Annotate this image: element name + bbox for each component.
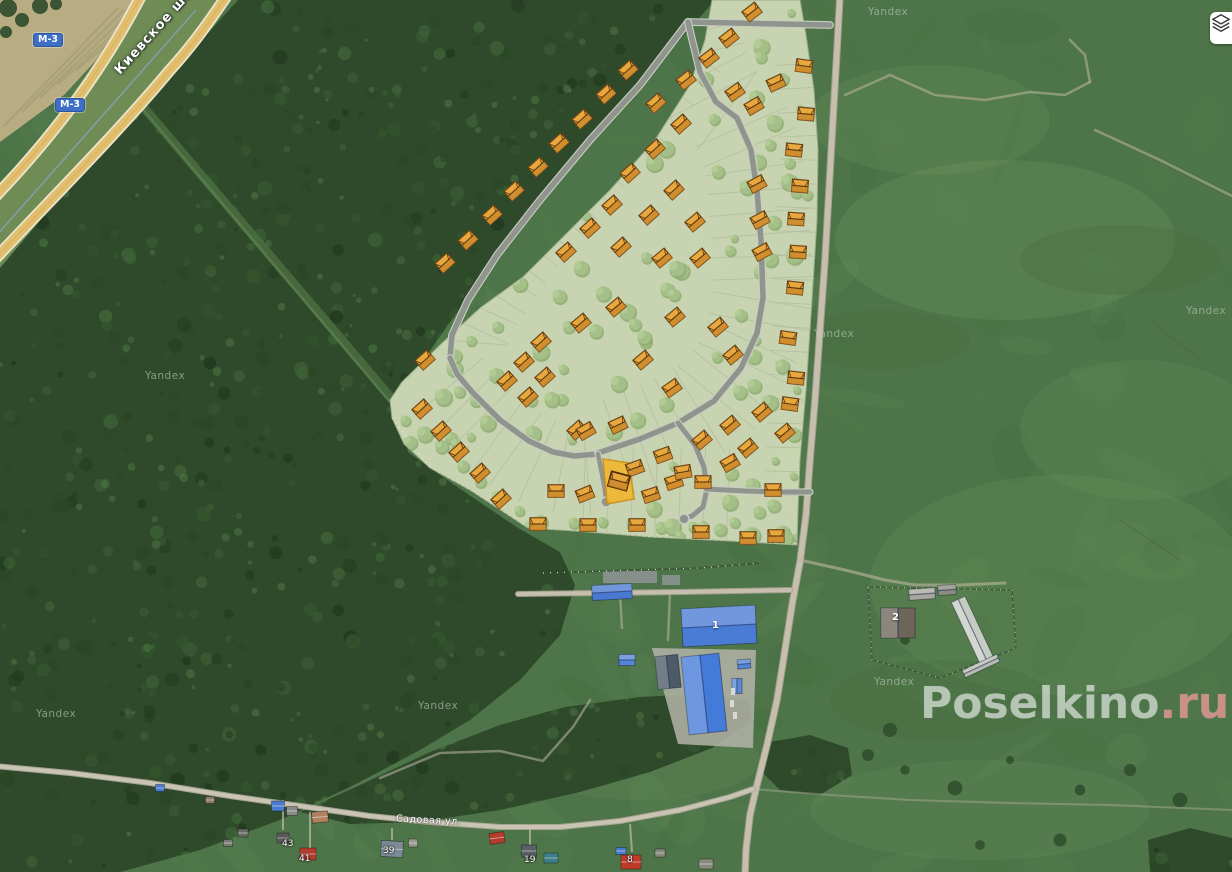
plan-house-icon [795, 59, 813, 74]
building [909, 588, 936, 601]
plan-house-icon [693, 526, 709, 539]
village-house [238, 829, 248, 837]
plan-house-icon [674, 464, 692, 479]
plan-house-icon [768, 530, 784, 543]
plan-house-icon [629, 519, 645, 532]
satellite-scene [0, 0, 1232, 872]
plan-house-icon [791, 179, 808, 193]
building [592, 583, 633, 600]
road-badge-m3-2: М-3 [55, 98, 85, 112]
village-house [381, 840, 404, 857]
plan-house-icon [530, 518, 546, 531]
plan-house-icon [797, 107, 814, 121]
building [681, 653, 727, 735]
building [655, 654, 681, 689]
plan-house-icon [779, 331, 797, 346]
village-house [272, 801, 285, 811]
village-house [699, 859, 713, 869]
village-house [409, 839, 418, 847]
village-house [156, 785, 165, 792]
building [737, 659, 751, 669]
building [881, 608, 915, 638]
village-house [544, 853, 558, 863]
plan-house-icon [785, 143, 802, 157]
village-house [522, 845, 537, 857]
village-house [206, 797, 215, 804]
village-house [287, 807, 298, 816]
village-house [489, 832, 505, 845]
plan-house-icon [790, 245, 807, 259]
plan-house-icon [740, 532, 756, 545]
layers-button[interactable] [1210, 12, 1232, 44]
village-house [655, 849, 665, 857]
plan-house-icon [695, 476, 711, 489]
village-house [616, 848, 626, 855]
village-house [621, 855, 641, 869]
building [938, 584, 957, 595]
layers-icon [1210, 12, 1232, 34]
plan-house-icon [580, 519, 596, 532]
village-house [224, 840, 233, 847]
village-house [312, 811, 329, 823]
building [681, 605, 757, 647]
building [619, 655, 635, 666]
road-badge-m3-1: М-3 [33, 33, 63, 47]
map-canvas[interactable]: Киевское ш. М-3 М-3 Садовая ул. 1 2 4341… [0, 0, 1232, 872]
plan-house-icon [787, 371, 804, 385]
plan-house-icon [786, 281, 803, 295]
plan-house-icon [548, 485, 564, 498]
plan-house-icon [781, 397, 799, 412]
plan-house-icon [788, 212, 805, 226]
plan-house-icon [765, 484, 781, 497]
village-house [277, 833, 289, 843]
village-house [300, 848, 316, 860]
